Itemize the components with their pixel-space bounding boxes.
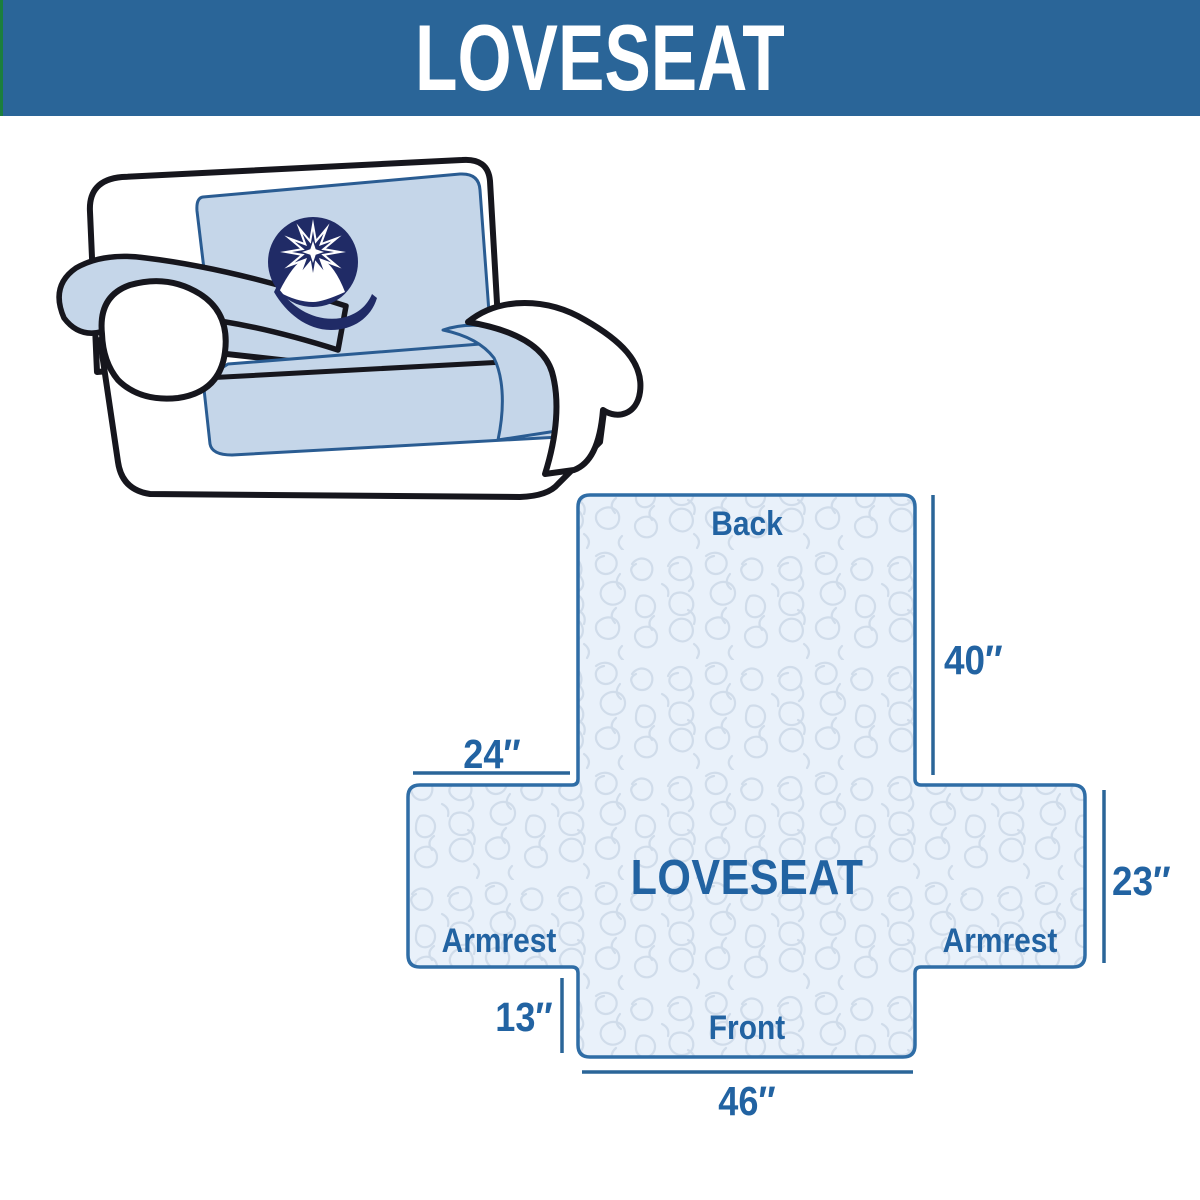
loveseat-illustration bbox=[59, 160, 640, 497]
illustration-canvas bbox=[0, 0, 1200, 1200]
dim-back-height-label: 40″ bbox=[944, 637, 1003, 684]
front-section-label: Front bbox=[709, 1009, 785, 1048]
dim-armrest-height-label: 23″ bbox=[1112, 858, 1171, 905]
armrest-left-label: Armrest bbox=[442, 922, 557, 961]
dim-front-width-label: 46″ bbox=[718, 1078, 775, 1125]
dim-armrest-width-label: 24″ bbox=[463, 731, 520, 778]
sofa-left-arm-roll bbox=[102, 281, 226, 399]
dim-front-height-label: 13″ bbox=[495, 994, 552, 1041]
armrest-right-label: Armrest bbox=[943, 922, 1058, 961]
cover-center-label: LOVESEAT bbox=[631, 850, 864, 906]
back-section-label: Back bbox=[711, 505, 783, 544]
dimension-diagram bbox=[408, 495, 1104, 1072]
page: LOVESEAT bbox=[0, 0, 1200, 1200]
